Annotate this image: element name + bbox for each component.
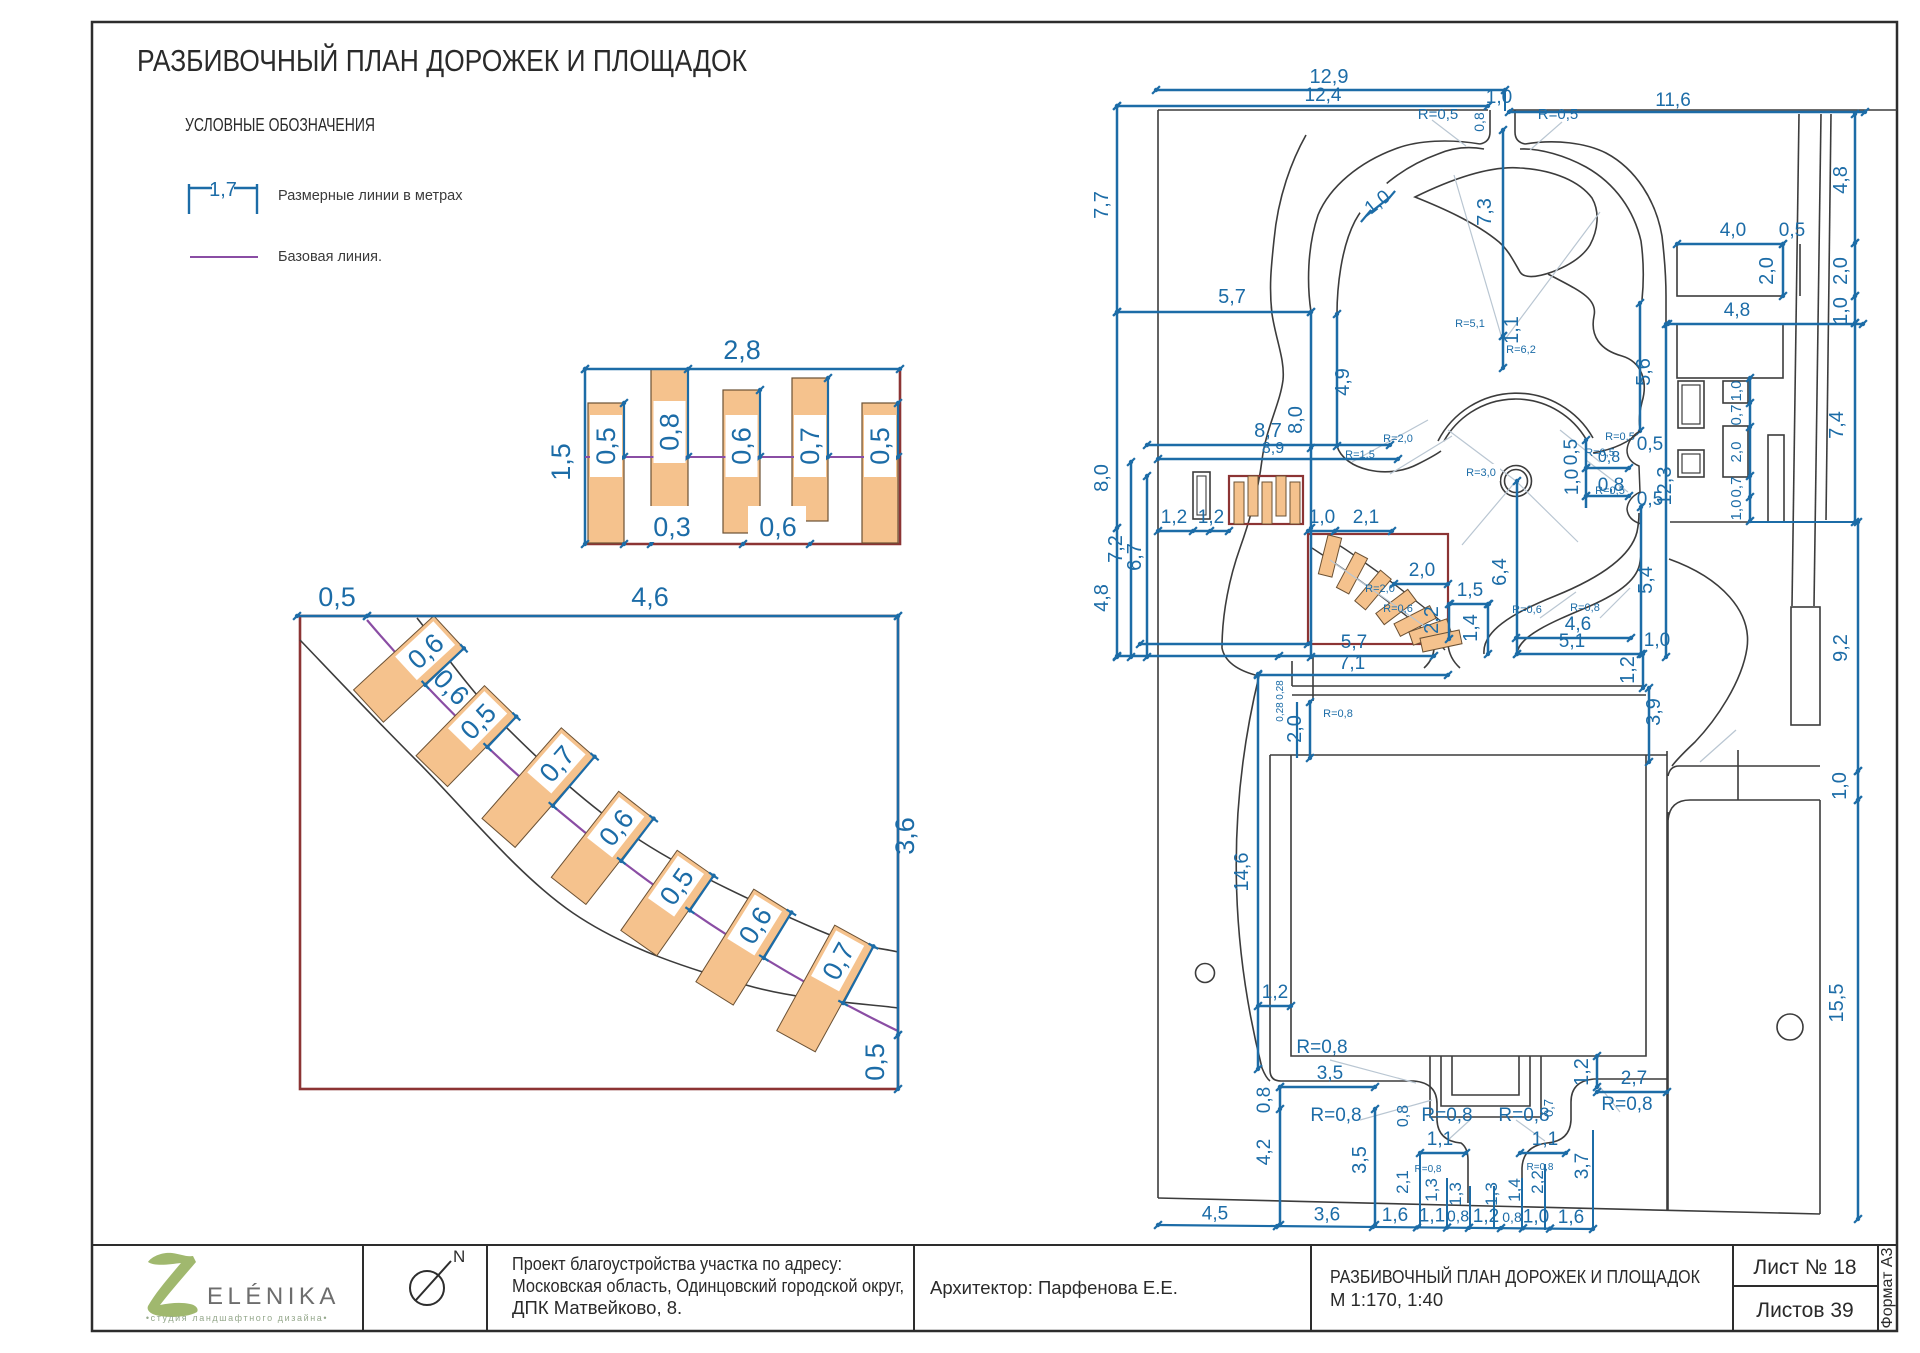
svg-text:0,5: 0,5 <box>865 427 895 465</box>
svg-text:R=0,5: R=0,5 <box>1595 485 1625 497</box>
svg-text:8,0: 8,0 <box>1285 406 1307 434</box>
svg-text:R=0,8: R=0,8 <box>1296 1037 1347 1058</box>
svg-text:9,2: 9,2 <box>1830 634 1852 662</box>
svg-text:8,7: 8,7 <box>1254 420 1282 442</box>
svg-text:0,6: 0,6 <box>759 512 797 542</box>
svg-text:2,8: 2,8 <box>723 335 761 365</box>
svg-text:ДПК Матвейково, 8.: ДПК Матвейково, 8. <box>512 1297 682 1318</box>
svg-text:7,4: 7,4 <box>1826 411 1848 439</box>
svg-text:3,9: 3,9 <box>1643 698 1665 726</box>
svg-text:0,5: 0,5 <box>318 582 356 612</box>
svg-text:Формат А3: Формат А3 <box>1879 1247 1896 1328</box>
svg-text:2,0: 2,0 <box>1728 442 1745 463</box>
svg-text:Лист № 18: Лист № 18 <box>1753 1256 1856 1279</box>
svg-text:1,0: 1,0 <box>1523 1206 1549 1227</box>
svg-text:0,8: 0,8 <box>1254 1087 1275 1113</box>
svg-text:0,5: 0,5 <box>1561 439 1582 465</box>
svg-text:15,5: 15,5 <box>1826 984 1848 1023</box>
svg-text:1,0: 1,0 <box>1562 469 1583 495</box>
svg-text:R=0,8: R=0,8 <box>1421 1105 1472 1126</box>
svg-text:R=0,8: R=0,8 <box>1415 1164 1442 1175</box>
svg-text:4,8: 4,8 <box>1091 584 1113 612</box>
svg-text:8,0: 8,0 <box>1091 464 1113 492</box>
svg-text:Архитектор: Парфенова Е.Е.: Архитектор: Парфенова Е.Е. <box>930 1277 1178 1298</box>
svg-text:4,2: 4,2 <box>1254 1139 1275 1165</box>
svg-text:0,6: 0,6 <box>727 427 757 465</box>
svg-text:2,0: 2,0 <box>1830 257 1852 285</box>
svg-text:1,1: 1,1 <box>1532 1129 1558 1150</box>
svg-text:0,7: 0,7 <box>1541 1099 1556 1117</box>
svg-text:R=0,6: R=0,6 <box>1383 603 1413 615</box>
svg-text:4,8: 4,8 <box>1724 300 1750 321</box>
svg-text:1,0: 1,0 <box>1728 500 1745 521</box>
svg-text:6,7: 6,7 <box>1124 543 1146 571</box>
svg-text:1,0: 1,0 <box>1829 772 1851 800</box>
svg-text:3,5: 3,5 <box>1317 1063 1343 1084</box>
svg-text:1,4: 1,4 <box>1460 614 1482 642</box>
svg-text:5,1: 5,1 <box>1559 631 1585 652</box>
svg-text:Размерные линии в метрах: Размерные линии в метрах <box>278 188 463 204</box>
svg-text:5,6: 5,6 <box>1633 358 1655 386</box>
svg-text:7,1: 7,1 <box>1339 653 1365 674</box>
svg-text:Листов 39: Листов 39 <box>1756 1299 1853 1322</box>
svg-text:2,1: 2,1 <box>1393 1170 1412 1194</box>
svg-text:РАЗБИВОЧНЫЙ ПЛАН ДОРОЖЕК И ПЛО: РАЗБИВОЧНЫЙ ПЛАН ДОРОЖЕК И ПЛОЩАДОК <box>1330 1266 1700 1287</box>
svg-text:1,3: 1,3 <box>1446 1182 1465 1206</box>
svg-text:1,2: 1,2 <box>1473 1206 1499 1227</box>
svg-text:1,2: 1,2 <box>1198 507 1224 528</box>
svg-text:1,6: 1,6 <box>1558 1207 1584 1228</box>
svg-text:R=5,1: R=5,1 <box>1455 318 1485 330</box>
svg-text:4,0: 4,0 <box>1720 220 1746 241</box>
svg-text:1,2: 1,2 <box>1262 982 1288 1003</box>
svg-text:1,7: 1,7 <box>209 179 237 201</box>
svg-text:3,7: 3,7 <box>1572 1153 1593 1179</box>
svg-text:0,8: 0,8 <box>1502 1209 1522 1225</box>
svg-text:R=0,8: R=0,8 <box>1601 1094 1652 1115</box>
svg-text:0,3: 0,3 <box>653 512 691 542</box>
svg-text:0,28: 0,28 <box>1275 680 1286 700</box>
svg-text:2,7: 2,7 <box>1621 1068 1647 1089</box>
svg-text:1,6: 1,6 <box>1382 1205 1408 1226</box>
svg-text:1,0: 1,0 <box>1644 630 1670 651</box>
svg-text:1,0: 1,0 <box>1486 87 1512 108</box>
svg-text:7,7: 7,7 <box>1091 191 1113 219</box>
svg-text:R=0,6: R=0,6 <box>1512 604 1542 616</box>
svg-text:1,3: 1,3 <box>1482 1182 1501 1206</box>
svg-text:4,5: 4,5 <box>1202 1204 1228 1225</box>
svg-text:R=0,8: R=0,8 <box>1310 1105 1361 1126</box>
svg-text:ELÉNIKA: ELÉNIKA <box>207 1283 340 1310</box>
svg-text:6,4: 6,4 <box>1489 558 1511 586</box>
svg-text:2,1: 2,1 <box>1353 507 1379 528</box>
svg-text:R=2,0: R=2,0 <box>1365 583 1395 595</box>
svg-text:1,0: 1,0 <box>1728 381 1745 402</box>
svg-text:5,7: 5,7 <box>1218 286 1246 308</box>
svg-text:2,0: 2,0 <box>1409 560 1435 581</box>
svg-text:2,0: 2,0 <box>1756 257 1778 285</box>
svg-text:0,5: 0,5 <box>1637 434 1663 455</box>
svg-text:R=0,5: R=0,5 <box>1585 447 1615 459</box>
svg-text:1,1: 1,1 <box>1427 1129 1453 1150</box>
svg-text:5,7: 5,7 <box>1341 632 1367 653</box>
svg-text:R=0,8: R=0,8 <box>1323 708 1353 720</box>
svg-text:R=6,2: R=6,2 <box>1506 344 1536 356</box>
svg-text:12,4: 12,4 <box>1305 85 1342 106</box>
svg-text:1,1: 1,1 <box>1501 316 1523 344</box>
svg-text:11,6: 11,6 <box>1655 90 1691 111</box>
svg-text:4,6: 4,6 <box>631 582 669 612</box>
svg-text:1,5: 1,5 <box>1457 580 1483 601</box>
svg-text:1,0: 1,0 <box>1830 297 1852 325</box>
svg-text:0,7: 0,7 <box>1728 405 1745 426</box>
svg-text:2,0: 2,0 <box>1284 715 1306 743</box>
svg-text:0,5: 0,5 <box>591 427 621 465</box>
svg-text:0,8: 0,8 <box>1471 112 1487 132</box>
svg-text:М 1:170, 1:40: М 1:170, 1:40 <box>1330 1289 1443 1310</box>
svg-text:РАЗБИВОЧНЫЙ ПЛАН ДОРОЖЕК И ПЛО: РАЗБИВОЧНЫЙ ПЛАН ДОРОЖЕК И ПЛОЩАДОК <box>137 42 747 78</box>
svg-text:1,1: 1,1 <box>1419 1205 1445 1226</box>
svg-text:1,2: 1,2 <box>1571 1058 1593 1086</box>
svg-text:3,6: 3,6 <box>1314 1205 1340 1226</box>
svg-text:•студия ландшафтного дизайна•: •студия ландшафтного дизайна• <box>146 1313 328 1323</box>
svg-text:2,2: 2,2 <box>1421 606 1443 634</box>
svg-text:7,3: 7,3 <box>1474 198 1496 226</box>
svg-text:1,5: 1,5 <box>546 443 576 481</box>
svg-text:R=1,5: R=1,5 <box>1345 449 1375 461</box>
svg-text:1,2: 1,2 <box>1617 656 1639 684</box>
svg-text:0,5: 0,5 <box>860 1043 890 1081</box>
svg-text:0,8: 0,8 <box>1395 1105 1412 1127</box>
svg-text:R=0,5: R=0,5 <box>1418 106 1458 123</box>
svg-text:Московская область, Одинцовски: Московская область, Одинцовский городско… <box>512 1275 904 1296</box>
svg-text:14,6: 14,6 <box>1231 853 1253 892</box>
svg-text:5,4: 5,4 <box>1635 566 1657 594</box>
svg-text:0,8: 0,8 <box>1447 1209 1469 1226</box>
svg-text:1,2: 1,2 <box>1161 507 1187 528</box>
svg-text:R=0,5: R=0,5 <box>1538 106 1578 123</box>
svg-text:Базовая линия.: Базовая линия. <box>278 249 382 265</box>
svg-text:0,8: 0,8 <box>655 413 685 451</box>
svg-text:4,9: 4,9 <box>1332 368 1354 396</box>
svg-text:3,6: 3,6 <box>890 817 920 855</box>
svg-text:R=3,0: R=3,0 <box>1466 467 1496 479</box>
svg-text:1,3: 1,3 <box>1422 1178 1441 1202</box>
svg-text:0,5: 0,5 <box>1779 220 1805 241</box>
svg-text:3,5: 3,5 <box>1349 1146 1371 1174</box>
svg-text:0,7: 0,7 <box>1728 477 1745 498</box>
svg-text:N: N <box>453 1247 465 1266</box>
svg-text:R=0,8: R=0,8 <box>1570 602 1600 614</box>
svg-text:УСЛОВНЫЕ ОБОЗНАЧЕНИЯ: УСЛОВНЫЕ ОБОЗНАЧЕНИЯ <box>185 115 375 135</box>
svg-text:R=2,0: R=2,0 <box>1383 433 1413 445</box>
svg-text:8,9: 8,9 <box>1262 440 1284 457</box>
svg-text:1,0: 1,0 <box>1309 507 1335 528</box>
svg-text:Проект благоустройства участка: Проект благоустройства участка по адресу… <box>512 1253 842 1274</box>
svg-text:4,8: 4,8 <box>1830 166 1852 194</box>
svg-text:0,7: 0,7 <box>795 427 825 465</box>
